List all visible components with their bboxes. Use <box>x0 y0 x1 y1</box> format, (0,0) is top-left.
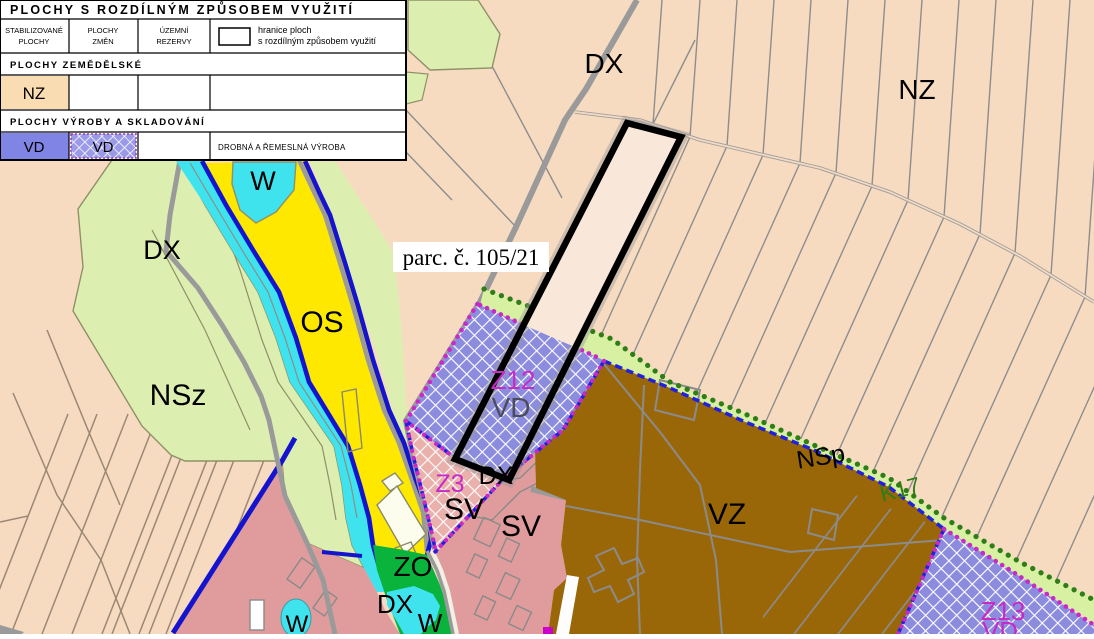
svg-text:VD: VD <box>93 139 114 156</box>
svg-text:PLOCHY: PLOCHY <box>88 26 119 35</box>
svg-text:parc. č. 105/21: parc. č. 105/21 <box>403 245 540 270</box>
svg-text:DX: DX <box>585 48 624 79</box>
svg-text:s rozdílným způsobem využití: s rozdílným způsobem využití <box>258 36 377 46</box>
svg-text:W: W <box>286 611 309 634</box>
svg-text:ZMĚN: ZMĚN <box>92 37 113 46</box>
svg-text:REZERVY: REZERVY <box>156 37 191 46</box>
svg-text:NZ: NZ <box>898 74 935 105</box>
svg-text:PLOCHY: PLOCHY <box>19 37 50 46</box>
svg-text:hranice ploch: hranice ploch <box>258 25 312 35</box>
svg-text:SV: SV <box>501 510 541 543</box>
svg-text:PLOCHY ZEMĚDĚLSKÉ: PLOCHY ZEMĚDĚLSKÉ <box>10 59 142 71</box>
svg-text:W: W <box>418 608 443 634</box>
svg-text:VD: VD <box>982 616 1018 634</box>
svg-text:VD: VD <box>492 392 531 423</box>
svg-text:NSz: NSz <box>150 379 207 412</box>
svg-text:OS: OS <box>300 306 343 339</box>
svg-text:DX: DX <box>479 462 514 490</box>
svg-text:STABILIZOVANÉ: STABILIZOVANÉ <box>5 26 63 35</box>
svg-text:PLOCHY S ROZDÍLNÝM ZPŮSOBEM VY: PLOCHY S ROZDÍLNÝM ZPŮSOBEM VYUŽITÍ <box>10 1 354 17</box>
svg-text:VZ: VZ <box>708 498 746 531</box>
svg-text:VD: VD <box>24 139 45 156</box>
svg-text:W: W <box>250 166 276 196</box>
svg-text:Z12: Z12 <box>491 365 536 395</box>
svg-text:ZO: ZO <box>394 551 433 582</box>
svg-text:NZ: NZ <box>23 84 46 103</box>
svg-text:PLOCHY VÝROBY A SKLADOVÁNÍ: PLOCHY VÝROBY A SKLADOVÁNÍ <box>10 116 205 128</box>
svg-text:DX: DX <box>143 235 181 265</box>
svg-text:ÚZEMNÍ: ÚZEMNÍ <box>160 26 190 35</box>
svg-text:DROBNÁ A ŘEMESLNÁ VÝROBA: DROBNÁ A ŘEMESLNÁ VÝROBA <box>218 143 346 152</box>
svg-text:DX: DX <box>377 589 413 619</box>
svg-text:SV: SV <box>444 493 484 526</box>
